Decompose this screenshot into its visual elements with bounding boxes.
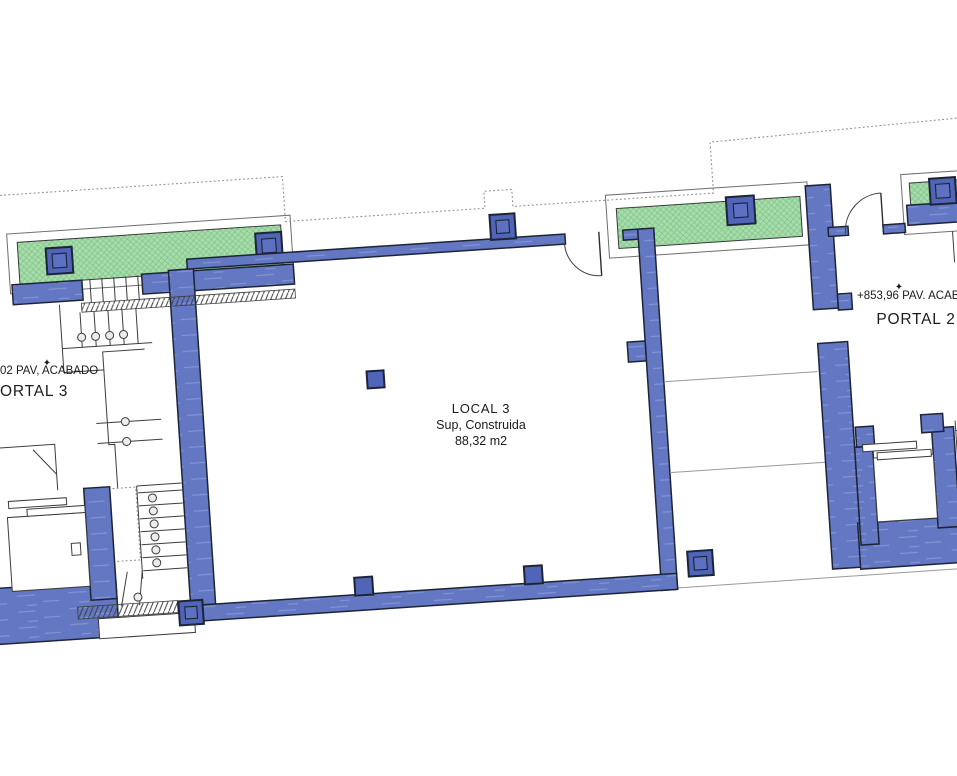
elevator-car bbox=[873, 454, 937, 522]
rotated-plan-group bbox=[0, 116, 957, 646]
local3-right-wall bbox=[638, 228, 678, 590]
door-leaf bbox=[599, 232, 602, 276]
newel-circle bbox=[150, 520, 159, 529]
room-outline bbox=[0, 444, 58, 495]
wall-segment bbox=[12, 280, 83, 305]
newel-circle bbox=[134, 593, 143, 602]
door-swing-arc bbox=[843, 193, 883, 233]
column-core bbox=[935, 183, 950, 198]
column-core bbox=[262, 238, 277, 253]
wall-pilaster bbox=[524, 565, 543, 584]
wall-stub bbox=[921, 413, 944, 432]
floor-plan-svg: LOCAL 3 Sup, Construida 88,32 m2 ✦ +853,… bbox=[0, 0, 957, 776]
newel-circle bbox=[148, 494, 157, 503]
portal3-elevation: 02 PAV, ACABADO bbox=[0, 365, 98, 377]
wall-pilaster bbox=[354, 577, 373, 596]
wall-edge-line bbox=[953, 231, 955, 262]
local3-entrance-door bbox=[564, 232, 602, 278]
planter-far-right bbox=[901, 169, 957, 265]
wall-notch bbox=[837, 293, 852, 310]
hall-floor-line bbox=[664, 372, 818, 382]
column-core bbox=[496, 220, 510, 234]
hall-floor-line bbox=[670, 462, 826, 472]
shaft-notch bbox=[71, 543, 81, 556]
pilaster bbox=[627, 341, 646, 362]
hall-right-wall bbox=[805, 184, 838, 309]
portal2-elevation: +853,96 PAV. ACABADO bbox=[857, 290, 957, 302]
newel-circle bbox=[77, 333, 86, 342]
stairwell-edge bbox=[104, 369, 118, 488]
newel-circle bbox=[91, 332, 100, 341]
column-core bbox=[52, 253, 67, 268]
newel-circle bbox=[105, 331, 114, 340]
door-jamb bbox=[883, 223, 906, 233]
local3-subtitle: Sup, Construida bbox=[436, 418, 526, 432]
column-core bbox=[185, 606, 198, 619]
newel-circle bbox=[152, 559, 161, 568]
portal2-label: PORTAL 2 bbox=[876, 311, 955, 328]
door-leaf bbox=[881, 193, 884, 232]
newel-circle bbox=[122, 437, 131, 446]
portal3-label: ORTAL 3 bbox=[0, 383, 68, 400]
floor-plan: LOCAL 3 Sup, Construida 88,32 m2 ✦ +853,… bbox=[0, 0, 957, 776]
stair-treads bbox=[80, 309, 138, 348]
column-core bbox=[694, 556, 708, 570]
newel-circle bbox=[152, 546, 161, 555]
local3-area: 88,32 m2 bbox=[455, 434, 507, 448]
newel-circle bbox=[151, 533, 160, 542]
door-swing-line bbox=[33, 448, 57, 475]
door-swing-arc bbox=[564, 241, 601, 278]
newel-circle bbox=[149, 507, 158, 516]
newel-circle bbox=[119, 330, 128, 339]
stair-treads bbox=[138, 490, 187, 571]
stair-boundary bbox=[137, 483, 188, 579]
newel-circle bbox=[121, 417, 130, 426]
stair-rail-line bbox=[62, 343, 152, 349]
local3-title: LOCAL 3 bbox=[452, 401, 511, 416]
local3-bottom-wall bbox=[191, 573, 678, 621]
interior-column bbox=[367, 370, 385, 388]
portal2-entry-door bbox=[826, 192, 906, 238]
ramp-lines bbox=[119, 571, 144, 606]
column-core bbox=[733, 203, 748, 218]
